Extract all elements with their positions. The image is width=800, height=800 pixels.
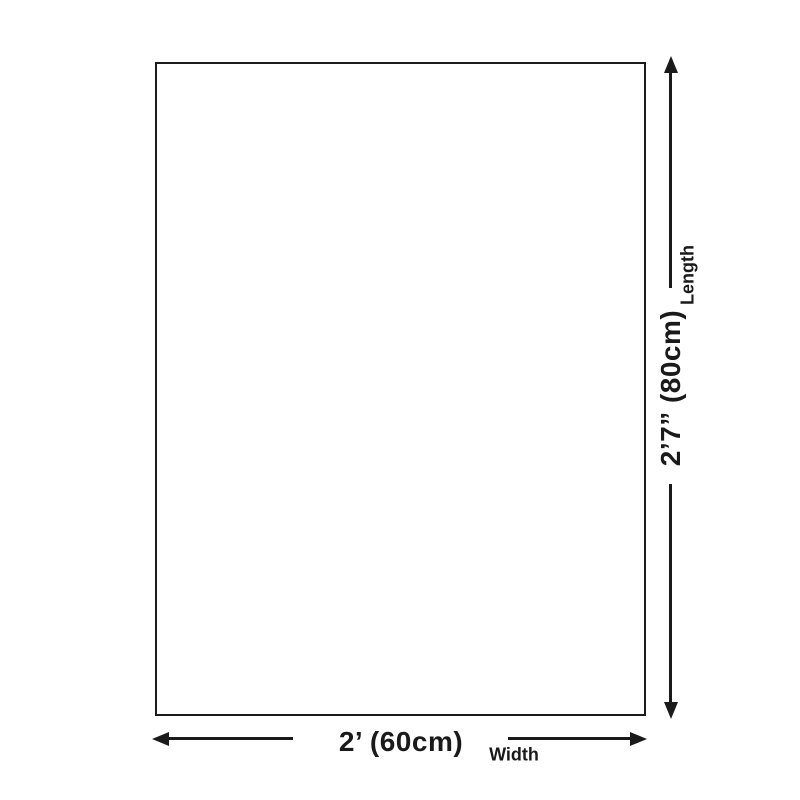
- arrow-right-icon: [630, 732, 647, 746]
- size-preview-rectangle: [155, 62, 646, 716]
- length-dimension-line-upper: [669, 71, 672, 288]
- dimension-diagram: Length 2’7” (80cm) 2’ (60cm) Width: [0, 0, 800, 800]
- width-value-label: 2’ (60cm): [339, 726, 463, 758]
- length-dimension-line-lower: [669, 484, 672, 704]
- length-value-label: 2’7” (80cm): [655, 310, 687, 466]
- arrow-down-icon: [664, 702, 678, 719]
- length-axis-label: Length: [678, 245, 699, 305]
- width-dimension-line-left: [167, 737, 293, 740]
- width-axis-label: Width: [489, 745, 539, 766]
- width-dimension-line-right: [508, 737, 634, 740]
